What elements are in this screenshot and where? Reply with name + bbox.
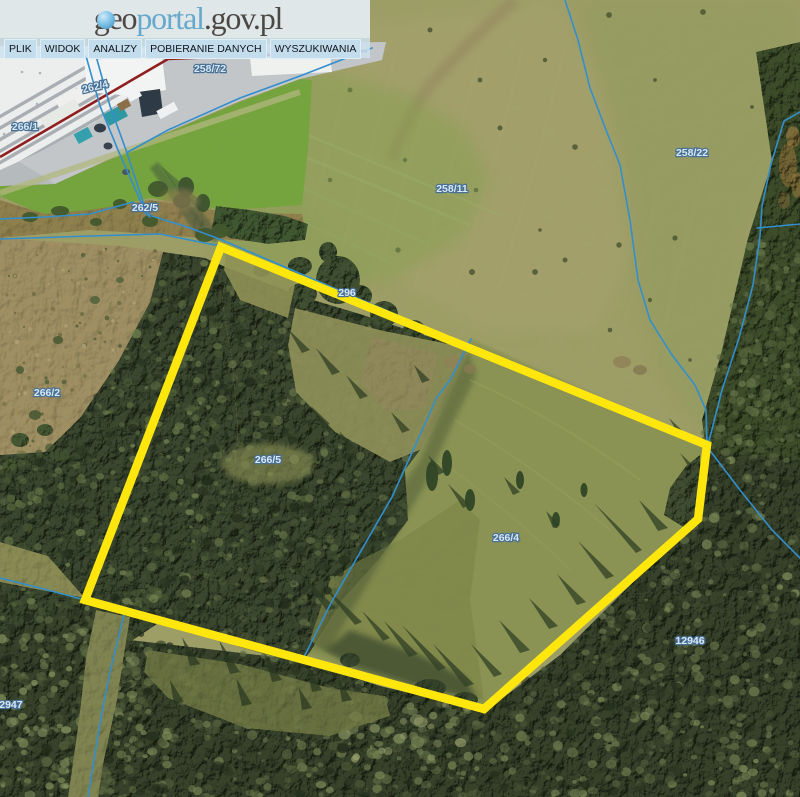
svg-text:258/22: 258/22 (676, 147, 708, 159)
svg-text:258/11: 258/11 (436, 183, 468, 195)
svg-text:12947: 12947 (0, 699, 23, 711)
svg-text:266/5: 266/5 (255, 454, 281, 466)
svg-text:296: 296 (338, 287, 356, 299)
svg-text:12946: 12946 (675, 635, 704, 647)
svg-text:266/1: 266/1 (12, 121, 38, 133)
svg-text:258/72: 258/72 (194, 63, 226, 75)
svg-text:266/2: 266/2 (34, 387, 60, 399)
svg-text:266/4: 266/4 (493, 532, 519, 544)
svg-text:262/5: 262/5 (132, 202, 158, 214)
